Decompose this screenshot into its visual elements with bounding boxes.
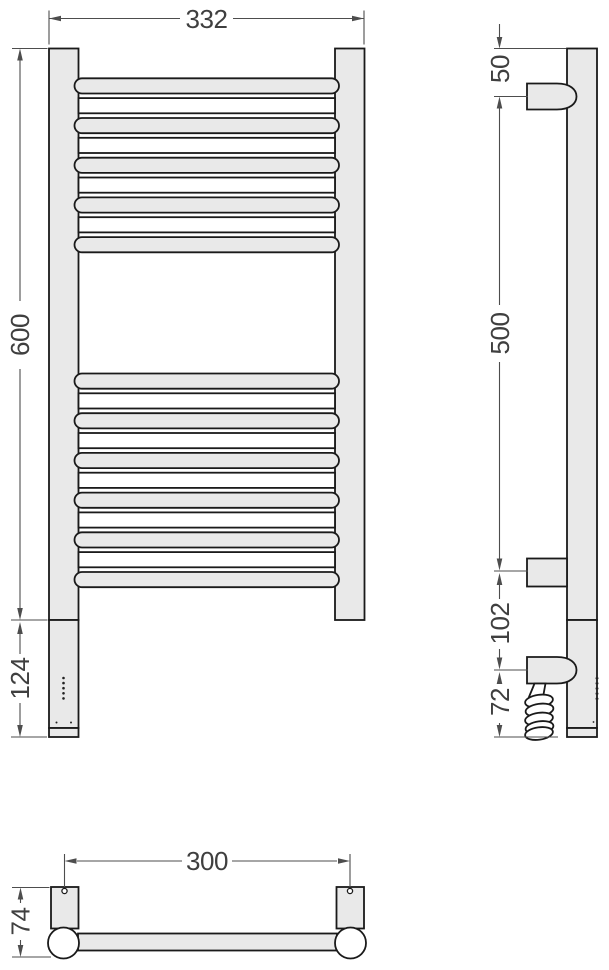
front-rung [75, 158, 340, 173]
side-heater-end-cap [567, 728, 597, 737]
dim-label-74: 74 [6, 908, 36, 936]
front-rungs [75, 78, 340, 587]
arrowhead-right [338, 858, 350, 863]
side-post [567, 49, 597, 621]
front-rung [75, 413, 340, 428]
arrowhead-up [497, 573, 503, 585]
dim-label-600: 600 [5, 314, 35, 356]
right-post-section [335, 928, 366, 959]
drawing-canvas: 332 600 124 [0, 0, 609, 970]
arrowhead-down [497, 725, 503, 737]
arrowhead-up [18, 888, 24, 900]
cable-entry-knob [527, 657, 577, 684]
dim-label-50: 50 [485, 55, 515, 83]
arrowhead-up [17, 49, 23, 61]
front-view [49, 49, 365, 738]
left-post-section [48, 928, 79, 959]
back-rung [79, 138, 336, 153]
front-rung [75, 572, 340, 587]
front-rung [75, 78, 340, 93]
back-rung [79, 178, 336, 193]
back-rung [79, 217, 336, 232]
dim-label-72: 72 [485, 688, 515, 716]
right-post [335, 49, 365, 621]
front-rung [75, 118, 340, 133]
front-rung [75, 532, 340, 547]
lower-wall-bracket [527, 559, 567, 587]
dim-label-124: 124 [5, 658, 35, 700]
back-rung [79, 98, 336, 113]
bottom-rung-bar [78, 934, 337, 951]
dim-label-500: 500 [485, 313, 515, 355]
led-dot [62, 692, 65, 695]
side-view [524, 49, 598, 742]
dim-label-300: 300 [186, 846, 228, 876]
arrowhead-right [352, 16, 364, 21]
led-dot [62, 677, 65, 680]
bottom-view [48, 887, 366, 959]
dimension-bracket-to-cable: 102 [485, 571, 528, 670]
housing-screw-dot [56, 722, 58, 724]
arrowhead-down [17, 725, 23, 737]
arrowhead-up [497, 97, 503, 109]
arrowhead-up [497, 672, 503, 684]
arrowhead-down [18, 945, 24, 957]
dimension-post-height: 600 [5, 49, 48, 621]
arrowhead-down [497, 658, 503, 670]
led-dot [62, 682, 65, 685]
arrowhead-left [49, 16, 61, 21]
housing-screw-dot [70, 722, 72, 724]
front-rung [75, 197, 340, 212]
arrowhead-down [497, 37, 503, 49]
back-rung [79, 473, 336, 488]
back-rung [79, 552, 336, 567]
dimension-heater-section: 124 [5, 622, 47, 737]
dim-label-102: 102 [485, 603, 515, 645]
back-rung [79, 393, 336, 408]
arrowhead-up [17, 622, 23, 634]
towel-rail-drawing: 332 600 124 [0, 0, 609, 970]
right-screw-hole [347, 888, 352, 893]
arrowhead-down [17, 608, 23, 620]
front-rung [75, 493, 340, 508]
dimension-mount-spacing: 300 [65, 846, 351, 887]
front-rung [75, 237, 340, 252]
side-screw-dot [593, 721, 595, 723]
coiled-cable [524, 693, 554, 742]
front-rung [75, 453, 340, 468]
heater-housing [49, 620, 79, 728]
arrowhead-down [497, 559, 503, 571]
dimension-wall-depth: 74 [6, 888, 52, 958]
dim-label-332: 332 [186, 4, 228, 34]
left-screw-hole [62, 888, 67, 893]
back-rung [79, 512, 336, 527]
led-dot [62, 697, 65, 700]
top-wall-bracket [527, 84, 577, 110]
back-rung [79, 433, 336, 448]
arrowhead-left [65, 858, 77, 863]
dimension-bracket-spacing: 500 [485, 97, 515, 571]
left-post [49, 49, 79, 621]
dimension-overall-width: 332 [49, 4, 364, 45]
heater-end-cap [49, 728, 79, 737]
front-rung [75, 374, 340, 389]
led-dot [62, 687, 65, 690]
